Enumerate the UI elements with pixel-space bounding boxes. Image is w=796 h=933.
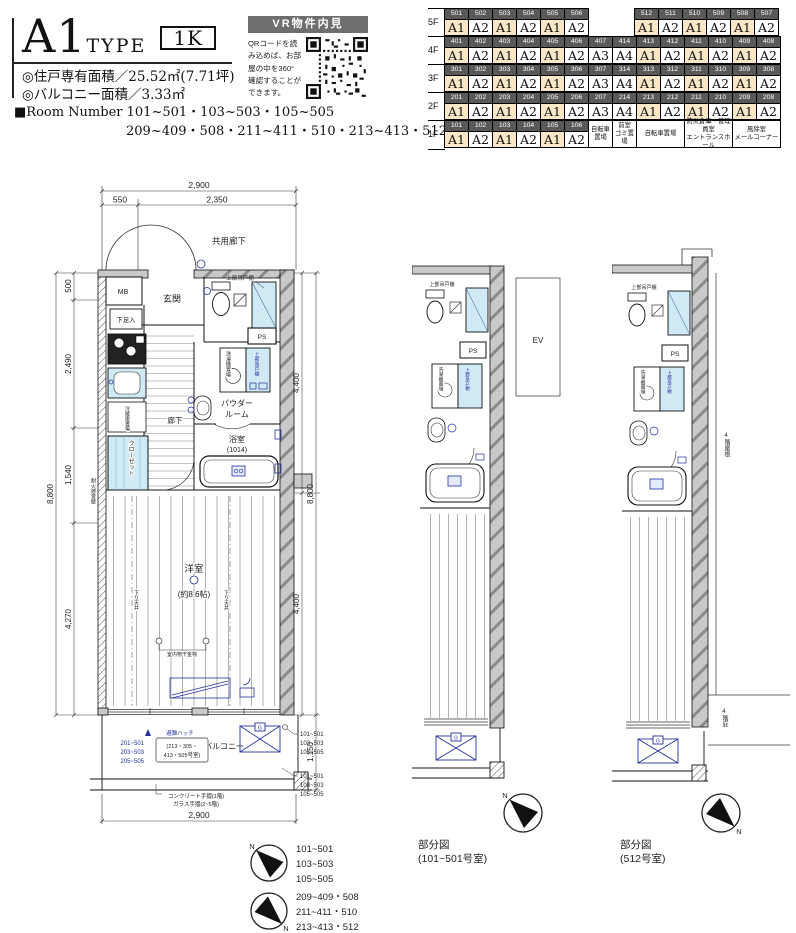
room-cell: 309A1 (732, 64, 757, 93)
bath-door-arc (214, 424, 250, 429)
dim-top-total: 2,900 (188, 180, 210, 190)
page-title: A1TYPE1K (22, 13, 216, 59)
floor-label: 5F (428, 8, 445, 37)
room-cell: 307A3 (588, 64, 613, 93)
dim-left-3: 1,540 (64, 464, 73, 485)
room-cell: 403A1 (492, 36, 517, 65)
room-type: A2 (516, 47, 541, 64)
room-type: A2 (468, 103, 493, 120)
room-cell: 503A1 (492, 8, 517, 37)
room-cell: 301A1 (444, 64, 469, 93)
floor-label: 3F (428, 64, 445, 93)
room-type: A1 (540, 19, 565, 36)
room-type: A2 (564, 103, 589, 120)
p1-window (424, 719, 488, 725)
leader-line-1 (287, 729, 298, 734)
layout-badge: 1K (160, 26, 216, 50)
room-cell: 405A1 (540, 36, 565, 65)
room-type: A3 (588, 47, 613, 64)
balcony-label: バルコニー (204, 742, 244, 751)
drop-ceiling-label-left: 下り天井 (133, 590, 139, 611)
floor-row: 5F501A1502A2503A1504A2505A1506A2512A1511… (428, 8, 781, 37)
p1-right-wall (490, 266, 504, 728)
title-underline (14, 62, 232, 64)
room-cell: 310A2 (708, 64, 733, 93)
room-type: A1 (682, 19, 707, 36)
closet-label: クローゼット (127, 440, 134, 476)
rooms-blue-2: 203~503 (120, 750, 144, 756)
room-type: A1 (684, 47, 709, 64)
room-cell: 411A1 (684, 36, 709, 65)
room-type: A2 (708, 75, 733, 92)
list-item: 確認することが (248, 75, 310, 87)
facility-cell: 自転車置場 (588, 120, 613, 148)
dim-bottom: 2,900 (188, 810, 210, 820)
room-type: A2 (468, 47, 493, 64)
room-type: A1 (492, 103, 517, 120)
dim-balcony: 1,150 (306, 741, 315, 762)
room-cell: 102A2 (468, 120, 493, 150)
room-type: A2 (756, 47, 781, 64)
p2-window (626, 722, 690, 728)
type-name: A1 (22, 9, 87, 63)
room-cell: 206A2 (564, 92, 589, 121)
list-item: QRコードを読 (248, 38, 310, 50)
washer-label: 洗濯機置場 (225, 350, 231, 379)
room-type: A1 (444, 75, 469, 92)
list-item: 105~505 (296, 872, 333, 887)
room-cell: 106A2 (564, 120, 589, 150)
partial-plan-2: 4階屋根 上部吊戸棚 PS 洗濯機置場 上部吊戸棚 (612, 243, 792, 813)
drop-ceiling-label-right: 下り天井 (223, 590, 229, 611)
p2-blue-cabinet-label: 上部吊戸棚 (667, 370, 673, 395)
north-compass-icon: N (246, 840, 292, 886)
room-cell: 313A1 (636, 64, 661, 93)
powder-room-label2: ルーム (225, 410, 249, 419)
room-type: A1 (684, 75, 709, 92)
room-type: A2 (468, 19, 493, 36)
dim-right-a: 4,400 (292, 372, 301, 393)
floor-row: 2F201A1202A2203A1204A2205A1206A2207A3214… (428, 92, 781, 121)
room-type: A3 (588, 75, 613, 92)
room-cell: 213A1 (636, 92, 661, 121)
room-type: A2 (564, 19, 589, 36)
room-type: A1 (732, 75, 757, 92)
p1-floor (424, 514, 488, 718)
room-cell: 511A2 (658, 8, 683, 37)
room-cell: 404A2 (516, 36, 541, 65)
hatch-rooms1: (213・305・ (166, 744, 197, 750)
room-cell: 201A1 (444, 92, 469, 121)
floor-label: 4F (428, 36, 445, 65)
room-type: A1 (634, 19, 659, 36)
room-cell: 308A2 (756, 64, 781, 93)
room-cell: 407A3 (588, 36, 613, 65)
room-cell: 414A4 (612, 36, 637, 65)
partial1-caption-line2: (101~501号室) (418, 852, 487, 866)
p2-bathtub (628, 457, 686, 505)
p2-roof-label: 4階屋根 (723, 433, 730, 458)
room-type: A4 (612, 75, 637, 92)
room-type: A1 (540, 131, 565, 148)
top-dimension-lines (100, 186, 298, 270)
p1-toilet (426, 288, 488, 332)
list-item: 屋の中を360° (248, 63, 310, 75)
floor-table: 5F501A1502A2503A1504A2505A1506A2512A1511… (428, 8, 781, 150)
room-type: A1 (492, 75, 517, 92)
room-type: A2 (516, 103, 541, 120)
facility-cell: 風除室メールコーナー (732, 120, 781, 148)
room-cell: 207A3 (588, 92, 613, 121)
qr-code (306, 37, 368, 99)
vr-description: QRコードを読み込めば、お部屋の中を360°確認することができます。 (248, 38, 310, 99)
common-corridor-label: 共用廊下 (212, 236, 247, 246)
washer-space (220, 348, 246, 392)
room-cell: 105A1 (540, 120, 565, 150)
room-type: A2 (706, 19, 731, 36)
room-cell: 508A1 (730, 8, 755, 37)
list-item: 103~503 (296, 857, 333, 872)
room-type: A1 (444, 47, 469, 64)
north-compass-icon: N (698, 790, 744, 836)
rooms-blue-1: 201~501 (120, 741, 144, 747)
room-cell: 209A1 (732, 92, 757, 121)
room-type: A1 (636, 47, 661, 64)
room-type: A2 (660, 103, 685, 120)
dim-left-1: 500 (64, 279, 73, 293)
hatch-rooms2: 413・505号室) (164, 751, 201, 759)
dim-top-b: 2,350 (206, 195, 228, 205)
handrail-label-2: ガラス手摺(2~5階) (173, 800, 219, 808)
room-cell: 502A2 (468, 8, 493, 37)
room-type: A1 (732, 47, 757, 64)
room-cell: 509A2 (706, 8, 731, 37)
room-type: A2 (756, 103, 781, 120)
room-cell: 410A2 (708, 36, 733, 65)
room-cell: 504A2 (516, 8, 541, 37)
right-dimensions (294, 271, 320, 792)
room-cell: 409A1 (732, 36, 757, 65)
room-cell: 204A2 (516, 92, 541, 121)
hatch-arrow (145, 729, 151, 736)
room-type: A2 (756, 75, 781, 92)
room-cell: 506A2 (564, 8, 589, 37)
mb-label: MB (118, 289, 129, 296)
west-room-label: 洋室 (184, 563, 203, 575)
p2-ps-label: PS (671, 351, 680, 358)
rooms-right-top-1: 101~501 (300, 732, 324, 738)
p1-bathtub (426, 454, 484, 502)
main-floor-plan: 2,900 550 2,350 共用廊下 (44, 178, 346, 830)
room-type: A2 (516, 19, 541, 36)
room-number-line2: 209~409・508・211~411・510・213~413・512 (14, 123, 447, 142)
room-number-line1: 101~501・103~503・105~505 (127, 105, 335, 120)
room-type: A1 (444, 103, 469, 120)
type-word: TYPE (87, 35, 147, 57)
rooms-right-bottom-3: 105~505 (300, 792, 324, 798)
room-cell: 305A1 (540, 64, 565, 93)
partial-plan-1: EV 上部吊戸棚 PS 洗濯機置場 上部吊戸棚 (412, 248, 562, 808)
room-type: A2 (516, 75, 541, 92)
room-type: A2 (754, 19, 779, 36)
room-cell: 214A4 (612, 92, 637, 121)
p2-cabinet-label: 上部吊戸棚 (631, 284, 656, 291)
room-cell: 402A2 (468, 36, 493, 65)
dim-right-total: 8,800 (306, 483, 315, 504)
escape-hatch-label: 避難ハッチ (166, 729, 194, 737)
room-cell: 205A1 (540, 92, 565, 121)
north-compass-icon: N (500, 790, 546, 836)
floor-label: 2F (428, 92, 445, 121)
room-type: A4 (612, 103, 637, 120)
room-type: A2 (468, 75, 493, 92)
room-cell: 507A2 (754, 8, 779, 37)
room-type: A2 (564, 47, 589, 64)
north-label: N (736, 827, 741, 836)
list-item: できます。 (248, 87, 310, 99)
room-type: A4 (612, 47, 637, 64)
room-cell: 408A2 (756, 36, 781, 65)
floorplan-sheet: A1TYPE1K ◎住戸専有面積／25.52㎡(7.71坪) ◎バルコニー面積／… (0, 0, 796, 933)
north-label: N (283, 924, 288, 933)
toilet (204, 282, 277, 333)
room-cell: 303A1 (492, 64, 517, 93)
north-label: N (502, 791, 507, 800)
list-item: 213~413・512 (296, 920, 359, 933)
bath-label: 浴室 (229, 434, 245, 444)
room-cell: 314A4 (612, 64, 637, 93)
partial2-caption-line1: 部分図 (620, 838, 666, 852)
rooms-right-bottom-1: 101~501 (300, 774, 324, 780)
entrance-door-arc (106, 225, 196, 270)
p2-g-label: G (656, 739, 660, 745)
room-cell: 203A1 (492, 92, 517, 121)
west-room-size: (約8.6帖) (178, 589, 211, 599)
room-type: A1 (492, 131, 517, 148)
ev-label: EV (533, 336, 544, 345)
room-type: A1 (730, 19, 755, 36)
hallway-floor (144, 330, 194, 488)
room-cell: 512A1 (634, 8, 659, 37)
leader-circle (283, 725, 288, 730)
room-cell: 505A1 (540, 8, 565, 37)
vr-title-bar: VR物件内見 (248, 16, 368, 33)
room-cell: 212A2 (660, 92, 685, 121)
laundry-hardware-label: 室内物干金物 (167, 651, 197, 658)
dim-left-total: 8,800 (46, 483, 55, 504)
room-type: A2 (516, 131, 541, 148)
partial2-caption: 部分図 (512号室) (620, 838, 666, 866)
p2-right-wall (692, 257, 708, 727)
balcony-area: ◎バルコニー面積／3.33㎡ (22, 85, 185, 106)
room-type: A2 (658, 19, 683, 36)
room-type: A1 (444, 131, 469, 148)
room-type: A1 (636, 75, 661, 92)
dim-left-4: 4,270 (64, 608, 73, 629)
rooms-blue-3: 205~505 (120, 759, 144, 765)
room-cell: 101A1 (444, 120, 469, 150)
upper-cabinet-label: 上部吊戸棚 (226, 274, 254, 282)
entrance-label: 玄関 (163, 293, 181, 304)
hallway-label: 廊下 (168, 415, 183, 425)
handrail-leader (156, 784, 162, 794)
bath-size-label: (1014) (227, 447, 247, 454)
p2-toilet (628, 291, 690, 335)
dim-left-2: 2,490 (64, 353, 73, 374)
p1-washer (432, 364, 458, 408)
room-cell: 510A1 (682, 8, 707, 37)
rooms-right-bottom-2: 103~503 (300, 783, 324, 789)
room-cell: 311A1 (684, 64, 709, 93)
handrail-label-1: コンクリート手摺(1階) (168, 792, 224, 800)
fridge-label: 冷蔵庫置場 (124, 405, 130, 432)
p1-washer-label: 洗濯機置場 (438, 366, 443, 392)
p2-eave-label: 4階庇 (721, 709, 728, 728)
room-cell: 401A1 (444, 36, 469, 65)
partial1-caption: 部分図 (101~501号室) (418, 838, 487, 866)
dim-right-b: 4,400 (292, 593, 301, 614)
room-cell: 103A1 (492, 120, 517, 150)
title-vertical-rule (12, 18, 14, 98)
fire-wall-label: 耐火遮音壁 (90, 477, 96, 505)
p2-washbasin (630, 421, 658, 445)
room-type: A2 (660, 47, 685, 64)
partial2-caption-line2: (512号室) (620, 852, 666, 866)
room-cell: 211A1 (684, 92, 709, 121)
facility-cell: 前室ゴミ置場 (612, 120, 637, 148)
list-item: 209~409・508 (296, 890, 359, 905)
room-cell: 202A2 (468, 92, 493, 121)
room-type: A1 (540, 75, 565, 92)
partial1-caption-line1: 部分図 (418, 838, 487, 852)
north-label: N (249, 842, 254, 851)
room-type: A3 (588, 103, 613, 120)
p2-top-wall (612, 265, 694, 273)
floor-row: 1F101A1102A2103A1104A2105A1106A2自転車置場前室ゴ… (428, 120, 781, 150)
room-type: A2 (564, 131, 589, 148)
list-item: 101~501 (296, 842, 333, 857)
room-type: A1 (540, 103, 565, 120)
compass-legend-1: 101~501103~503105~505 (296, 842, 333, 887)
room-cell: 306A2 (564, 64, 589, 93)
p2-floor (626, 517, 690, 721)
floor-row: 3F301A1302A2303A1304A2305A1306A2307A3314… (428, 64, 781, 93)
p1-top-wall (412, 266, 492, 274)
room-cell: 104A2 (516, 120, 541, 150)
p1-ps-label: PS (469, 348, 478, 355)
ps-label: PS (258, 334, 267, 341)
p1-g-label: G (454, 736, 458, 742)
p2-washer-label: 洗濯機置場 (640, 369, 645, 395)
room-cell: 501A1 (444, 8, 469, 37)
room-type: A1 (492, 47, 517, 64)
g-label: G (258, 726, 262, 732)
bathtub (200, 456, 278, 487)
room-cell: 302A2 (468, 64, 493, 93)
p1-washbasin (428, 418, 456, 442)
empty-cell (588, 8, 612, 37)
lighting-symbol (190, 576, 198, 584)
room-cell: 412A2 (660, 36, 685, 65)
outlet-symbol (197, 260, 205, 268)
floor-label: 1F (428, 120, 445, 150)
room-type: A2 (564, 75, 589, 92)
room-type: A1 (732, 103, 757, 120)
p1-cabinet-label: 上部吊戸棚 (429, 281, 454, 288)
room-type: A1 (540, 47, 565, 64)
facility-cell: 自転車置場 (636, 120, 685, 148)
room-type: A1 (444, 19, 469, 36)
room-cell: 304A2 (516, 64, 541, 93)
list-item: み込めば、お部 (248, 50, 310, 62)
facility-cell: 防災倉庫・管理員室エントランスホール (684, 120, 733, 148)
room-number-block: ■Room Number 101~501・103~503・105~505 209… (14, 104, 447, 142)
p1-blue-cabinet-label: 上部吊戸棚 (465, 367, 471, 392)
room-cell: 413A1 (636, 36, 661, 65)
floor-row: 4F401A1402A2403A1404A2405A1406A2407A3414… (428, 36, 781, 65)
room-cell: 406A2 (564, 36, 589, 65)
empty-cell (611, 8, 635, 37)
shoe-box-label: 下足入 (117, 316, 137, 324)
room-type: A2 (468, 131, 493, 148)
room-cell: 208A2 (756, 92, 781, 121)
p2-washer (634, 367, 660, 411)
blue-cabinet-label: 上部吊戸棚 (254, 351, 259, 377)
room-cell: 312A2 (660, 64, 685, 93)
room-number-label: ■Room Number (14, 105, 127, 120)
powder-room-label1: パウダー (221, 398, 253, 408)
kitchen (108, 334, 146, 398)
room-type: A1 (492, 19, 517, 36)
room-type: A1 (636, 103, 661, 120)
dim-top-a: 550 (113, 195, 127, 205)
room-cell: 210A2 (708, 92, 733, 121)
room-type: A2 (708, 47, 733, 64)
compass-legend-2: 209~409・508211~411・510213~413・512 (296, 890, 359, 933)
north-compass-icon: N (246, 888, 292, 933)
list-item: 211~411・510 (296, 905, 359, 920)
room-type: A2 (660, 75, 685, 92)
